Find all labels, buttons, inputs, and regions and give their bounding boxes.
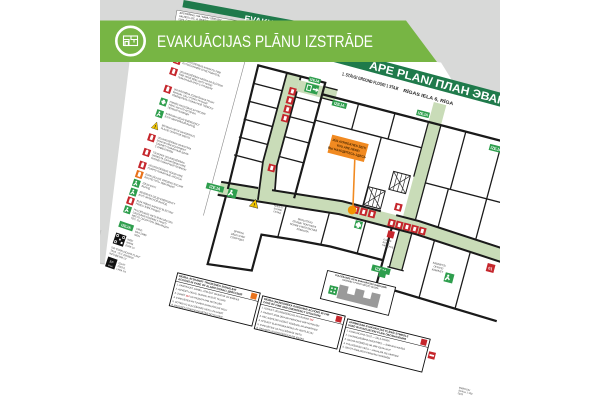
svg-text:EVAKUĀCIJAS PLĀNU IZSTRĀDE: EVAKUĀCIJAS PLĀNU IZSTRĀDE — [157, 32, 373, 51]
